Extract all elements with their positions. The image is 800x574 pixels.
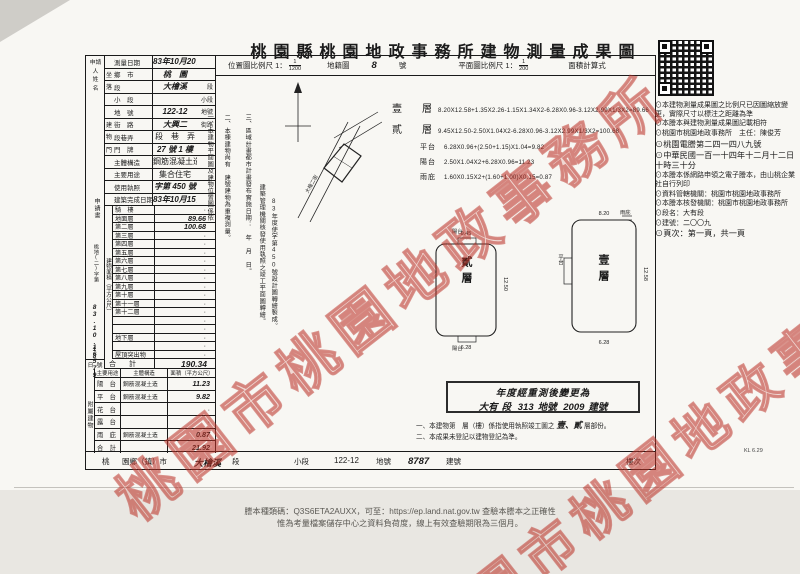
scanned-survey-document: 桃園縣桃園地政事務所建物測量成果圖 位置圖比例尺 1： 11200 地籍圖 8 …	[0, 0, 800, 574]
cadastral-map-label: 地籍圖	[327, 60, 350, 71]
attached-row: 平 台 鋼筋混凝土造 9.82	[95, 391, 216, 404]
section-unit: 段	[232, 456, 240, 467]
row-label: 小 段	[113, 94, 153, 106]
row-value: 大興二	[153, 119, 197, 130]
attached-area-value: ·	[168, 405, 216, 414]
table-row: 建築完成日期 83年10月15日	[105, 194, 215, 207]
row-label: 主體構造	[113, 156, 153, 168]
number-label: 號	[97, 360, 103, 369]
attached-header-struct: 主體構造	[121, 369, 168, 377]
attached-row: 露 台 ·	[95, 416, 216, 429]
parcel-unit: 地號	[376, 456, 391, 467]
row-group-char: 門	[105, 145, 113, 154]
floor-label: 第七層	[113, 266, 155, 274]
day-number-cell: 日 號	[86, 359, 104, 369]
attached-use: 露 台	[95, 416, 121, 428]
floor-label: 第十一層	[113, 300, 155, 308]
row-unit: 段	[197, 82, 215, 91]
attached-row: 陽 台 鋼筋混凝土造 11.23	[95, 378, 216, 391]
parcel-number: 122-12	[334, 456, 359, 465]
note-1-continuation-2: 83年度使字第450號設計圖轉繪製成。	[270, 198, 276, 373]
formula-label: 陽台	[420, 157, 444, 167]
canopy-label: 雨庇	[620, 208, 631, 216]
table-row: 落 段 大檜溪 段	[105, 81, 215, 94]
floor-label: 第八層	[113, 274, 155, 282]
attached-structures-table: 附屬建物 主要用途 主體構造 面積（平方公尺） 陽 台 鋼筋混凝土造	[86, 369, 216, 453]
formula-expression: 6.28X0.96+(2.50+1.15)X1.04=9.82	[444, 144, 544, 151]
footer-line2: 惟為考量檔案儲存中心之資料負荷度，線上有效查驗期限為三個月。	[0, 518, 800, 530]
day-label: 日	[88, 360, 94, 369]
table-row: 主體構造 鋼筋混凝土造	[105, 156, 215, 169]
attached-struct: 鋼筋混凝土造	[121, 429, 168, 441]
bottom-note-1-handwritten: 壹、貳	[556, 420, 582, 430]
attached-use: 雨 庇	[95, 429, 121, 441]
row-label: 段	[113, 81, 153, 93]
bottom-note-2: 二、本成果未登記以建物登記為準。	[416, 432, 668, 443]
info-rows: 測量日期 83年10月20日 坐 鄉 市 桃 園 落	[105, 56, 215, 206]
building-info-table: 申請人 姓 名 申請書 桃地(二)字第 83.10.18 16579 日 號	[86, 56, 216, 453]
formula-label: 平台	[420, 142, 444, 152]
verification-footer: 謄本種類碼：Q3S6ETA2AUXX，可至：https://ep.land.na…	[0, 506, 800, 531]
transcript-notes: ⊙本建物測量成果圖之比例尺已因圖縮放變更，實際尺寸以標注之距離為準 ⊙本謄本與建…	[655, 102, 798, 240]
floor-plan-second-name: 貳層	[458, 256, 474, 288]
formula-expression: 8.20X12.58+1.35X2.26-1.15X1.34X2-6.28X0.…	[438, 107, 649, 114]
row-label: 門 牌	[113, 144, 153, 156]
attached-body: 主要用途 主體構造 面積（平方公尺） 陽 台 鋼筋混凝土造 11.23	[95, 369, 216, 453]
row-value: 字第 450 號	[153, 181, 197, 192]
township-label: 園鄉（鎮）市	[122, 456, 167, 467]
dimension-right: 12.50	[502, 277, 508, 291]
stamp-section-unit: 段	[502, 402, 512, 413]
platform-label: 平台	[556, 254, 564, 265]
bottom-note-1-suffix: 層部份。	[584, 423, 610, 430]
table-row: 物 段巷弄 段 巷 弄	[105, 131, 215, 144]
row-label: 使用執照	[113, 181, 153, 193]
cadastral-unit: 號	[399, 60, 407, 71]
row-value: 27 號 1 樓	[153, 144, 197, 155]
stamp-section-name: 大有	[479, 402, 498, 413]
total-label: 合 計	[105, 359, 155, 368]
applicant-column: 申請人 姓 名 申請書 桃地(二)字第 83.10.18 16579 日 號	[86, 56, 105, 369]
attached-header-use: 主要用途	[95, 369, 121, 377]
transcript-note: ⊙段名：大有段	[655, 210, 798, 219]
attached-use: 平 台	[95, 391, 121, 403]
floor-label: 第九層	[113, 283, 155, 291]
info-rows-area: 測量日期 83年10月20日 坐 鄉 市 桃 園 落	[105, 56, 215, 369]
table-row: 使用執照 字第 450 號	[105, 181, 215, 194]
attached-area-value: 0.87	[168, 430, 216, 439]
application-book-label: 申請書	[92, 198, 101, 219]
attached-use: 陽 台	[95, 378, 121, 390]
stamp-line2: 大有段 313地號 2009建號	[448, 399, 638, 413]
stamp-parcel-number: 313	[518, 402, 534, 413]
attached-header-area: 面積（平方公尺）	[168, 369, 216, 377]
transcript-note: ⊙本建物測量成果圖之比例尺已因圖縮放變更，實際尺寸以標注之距離為準	[655, 102, 798, 119]
floor-group-label: 建物面積（平方公尺）	[105, 206, 113, 359]
floor-label: 屋頂突出物	[113, 351, 155, 359]
row-group-char: 坐	[105, 70, 113, 79]
row-label: 主要用途	[113, 169, 153, 181]
table-row: 主要用途 集合住宅	[105, 169, 215, 182]
bottom-notes: 一、本建物第 層（樓）係指使用執照竣工圖之壹、貳層部份。 二、本成果未登記以建物…	[416, 418, 668, 444]
resurvey-stamp-box: 年度經重測後變更為 大有段 313地號 2009建號	[446, 381, 640, 413]
attached-struct: 鋼筋混凝土造	[121, 378, 168, 390]
balcony-label-bottom: 陽台	[452, 344, 463, 352]
building-unit: 建號	[446, 456, 461, 467]
transcript-note: ⊙桃園市桃園地政事務所 主任：陳俊芳	[655, 130, 798, 139]
receipt-number-label: 桃地(二)字第	[93, 244, 100, 282]
row-value: 集合住宅	[153, 169, 197, 180]
floor-label	[113, 342, 155, 350]
scan-shadow-band	[0, 490, 800, 574]
formula-label: 雨庇	[420, 172, 444, 182]
row-value: 鋼筋混凝土造	[153, 156, 197, 167]
transcript-note: ⊙中華民國一百一十四年十二月十二日十時三十分	[655, 151, 798, 171]
floor-unit: 樓次	[626, 456, 641, 467]
qr-finder-bottomleft	[658, 82, 672, 96]
table-row: 地 號 122-12 地號	[105, 106, 215, 119]
floor-label: 第十二層	[113, 308, 155, 316]
floor-plan-second: 9.45 12.50 6.28	[420, 226, 512, 350]
stamp-building-number: 2009	[563, 402, 584, 413]
cadastral-sheet-number: 8	[372, 60, 377, 71]
dimension-top: 8.20	[599, 211, 610, 217]
row-label: 地 號	[113, 106, 153, 118]
floor-label: 第六層	[113, 257, 155, 265]
location-scale-label: 位置圖比例尺 1：	[228, 60, 287, 71]
formula-expression: 1.60X0.15X2+(1.60+1.00)X0.15=0.87	[444, 174, 552, 181]
location-strip: 桃 園鄉（鎮）市 大檜溪 段 小段 122-12 地號 8787 建號 樓次	[86, 451, 655, 469]
total-row: 合 計 190.34	[105, 359, 215, 369]
form-code: KL 6.29	[744, 448, 763, 454]
transcript-note: ⊙建號：二〇〇九	[655, 220, 798, 229]
applicant-label-line2: 姓 名	[87, 76, 104, 93]
total-value: 190.34	[155, 359, 215, 369]
table-row: 建 街 路 大興二 街路	[105, 119, 215, 132]
note-2: 二、本棟建物尚有 建號建物為重複測量。	[223, 114, 229, 344]
survey-form: 位置圖比例尺 1： 11200 地籍圖 8 號 平面圖比例尺 1： 1200 面…	[85, 55, 656, 470]
qr-finder-topright	[700, 40, 714, 54]
table-row: 坐 鄉 市 桃 園	[105, 69, 215, 82]
bottom-note-1: 一、本建物第 層（樓）係指使用執照竣工圖之壹、貳層部份。	[416, 418, 668, 432]
section-name-handwritten: 大檜溪	[194, 456, 221, 469]
row-label: 段巷弄	[113, 131, 153, 143]
attached-row: 雨 庇 鋼筋混凝土造 0.87	[95, 429, 216, 442]
formula-expression: 2.50X1.04X2+6.28X0.96=11.23	[444, 159, 534, 166]
attached-struct: 鋼筋混凝土造	[121, 391, 168, 403]
floor-label: 第十層	[113, 291, 155, 299]
applicant-label-line1: 申請人	[87, 59, 104, 76]
attached-struct	[121, 403, 168, 415]
qr-finder-topleft	[658, 40, 672, 54]
area-calc-label: 面積計算式	[568, 60, 606, 71]
floor-label: 第四層	[113, 240, 155, 248]
note-1: 一、本建物平面圖及建物位置圖係依	[206, 114, 212, 344]
formula-label: 壹 層	[392, 100, 438, 115]
plan-scale-label: 平面圖比例尺 1：	[458, 60, 517, 71]
floor-rows: 騎 樓 · 地面層 89.66 第二層 100.68	[113, 206, 215, 359]
formula-line: 平台 6.28X0.96+(2.50+1.15)X1.04=9.82	[420, 142, 654, 152]
formula-line: 陽台 2.50X1.04X2+6.28X0.96=11.23	[420, 157, 654, 167]
stamp-parcel-unit: 地號	[538, 402, 557, 413]
row-label: 鄉 市	[113, 69, 153, 81]
attached-header-row: 主要用途 主體構造 面積（平方公尺）	[95, 369, 216, 378]
note-1-continuation: 建築管理機關核發使用執照之竣工平面圖轉繪。	[258, 184, 264, 374]
attached-row: 花 台 ·	[95, 403, 216, 416]
transcript-note: ⊙桃園電謄第二四一四八九號	[655, 140, 798, 150]
floor-label: 第五層	[113, 249, 155, 257]
attached-rows: 陽 台 鋼筋混凝土造 11.23 平 台 鋼筋混凝土造 9.82	[95, 378, 216, 453]
attached-area-value: ·	[168, 417, 216, 426]
floor-label: 第三層	[113, 232, 155, 240]
row-value: 大檜溪	[153, 81, 197, 92]
qr-code	[658, 40, 714, 96]
transcript-note: ⊙資料管轄機關：桃園市桃園地政事務所	[655, 191, 798, 200]
table-row: 測量日期 83年10月20日	[105, 56, 215, 69]
attached-group-label: 附屬建物	[86, 369, 95, 453]
floor-label: 第二層	[113, 223, 155, 231]
applicant-label: 申請人 姓 名	[87, 59, 104, 94]
row-value: 桃 園	[153, 69, 197, 80]
formula-line: 雨庇 1.60X0.15X2+(1.60+1.00)X0.15=0.87	[420, 172, 654, 182]
location-map: 大檜二街	[286, 104, 382, 222]
floor-label: 地下層	[113, 334, 155, 342]
row-group-char: 物	[105, 132, 113, 141]
row-value: 122-12	[153, 107, 197, 116]
row-group-char: 建	[105, 120, 113, 129]
table-row: 門 門 牌 27 號 1 樓	[105, 144, 215, 157]
page-edge-line	[14, 487, 794, 488]
plan-scale-fraction: 1200	[519, 59, 528, 72]
row-label: 建築完成日期	[113, 194, 153, 206]
location-scale-fraction: 11200	[289, 59, 301, 72]
stamp-line1: 年度經重測後變更為	[448, 383, 638, 399]
transcript-note: ⊙本謄本與建物測量成果圖記載相符	[655, 120, 798, 129]
floor-area-value: ·	[155, 350, 215, 359]
formula-line: 貳 層 9.45X12.50-2.50X1.04X2-6.28X0.96-3.1…	[392, 121, 654, 136]
footer-line1: 謄本種類碼：Q3S6ETA2AUXX，可至：https://ep.land.na…	[0, 506, 800, 518]
floor-plan-first-name: 壹層	[595, 254, 611, 286]
formula-label: 貳 層	[392, 121, 438, 136]
row-label: 測量日期	[113, 56, 153, 68]
row-unit: 小段	[197, 95, 215, 104]
floor-label	[113, 325, 155, 333]
row-value: 段 巷 弄	[153, 131, 197, 142]
fraction-denominator: 1200	[289, 66, 301, 72]
table-row: 小 段 小段	[105, 94, 215, 107]
county-prefix: 桃	[102, 456, 110, 467]
floor-label: 地面層	[113, 215, 155, 223]
floor-label: 騎 樓	[113, 206, 155, 214]
attached-area-value: 9.82	[168, 392, 216, 401]
fraction-denominator: 200	[519, 66, 528, 72]
subsection-label: 小段	[294, 456, 309, 467]
dimension-right: 12.58	[642, 267, 648, 281]
dimension-bottom: 6.28	[599, 340, 610, 346]
scan-corner-shadow	[0, 0, 70, 42]
floor-area-section: 建物面積（平方公尺） 騎 樓 · 地面層 89.66	[105, 206, 215, 359]
attached-use: 花 台	[95, 403, 121, 415]
attached-struct	[121, 416, 168, 428]
attached-area-value: 11.23	[168, 379, 216, 388]
transcript-note: ⊙本謄本係網路申領之電子謄本，由山桃企業社自行列印	[655, 172, 798, 189]
transcript-note: ⊙本謄本核發機關：桃園市桃園地政事務所	[655, 200, 798, 209]
formula-line: 壹 層 8.20X12.58+1.35X2.26-1.15X1.34X2-6.2…	[392, 100, 654, 115]
scale-bar: 位置圖比例尺 1： 11200 地籍圖 8 號 平面圖比例尺 1： 1200 面…	[216, 56, 655, 76]
floor-label	[113, 317, 155, 325]
row-value: 83年10月15日	[153, 194, 197, 205]
balcony-label-top: 陽台	[452, 227, 463, 235]
row-group-char: 落	[105, 82, 113, 91]
row-value: 83年10月20日	[153, 56, 197, 67]
area-formulas: 壹 層 8.20X12.58+1.35X2.26-1.15X1.34X2-6.2…	[392, 100, 654, 187]
note-3: 三、區域計畫都市計畫發布實施日期： 年 月 日。	[244, 114, 250, 349]
transcript-note: ⊙頁次：第一頁，共一頁	[655, 229, 798, 239]
formula-expression: 9.45X12.50-2.50X1.04X2-6.28X0.96-3.12X2.…	[438, 128, 619, 135]
stamp-building-unit: 建號	[588, 402, 607, 413]
building-number-handwritten: 8787	[408, 456, 429, 467]
row-label: 街 路	[113, 119, 153, 131]
bottom-note-1-text: 一、本建物第 層（樓）係指使用執照竣工圖之	[416, 423, 554, 430]
